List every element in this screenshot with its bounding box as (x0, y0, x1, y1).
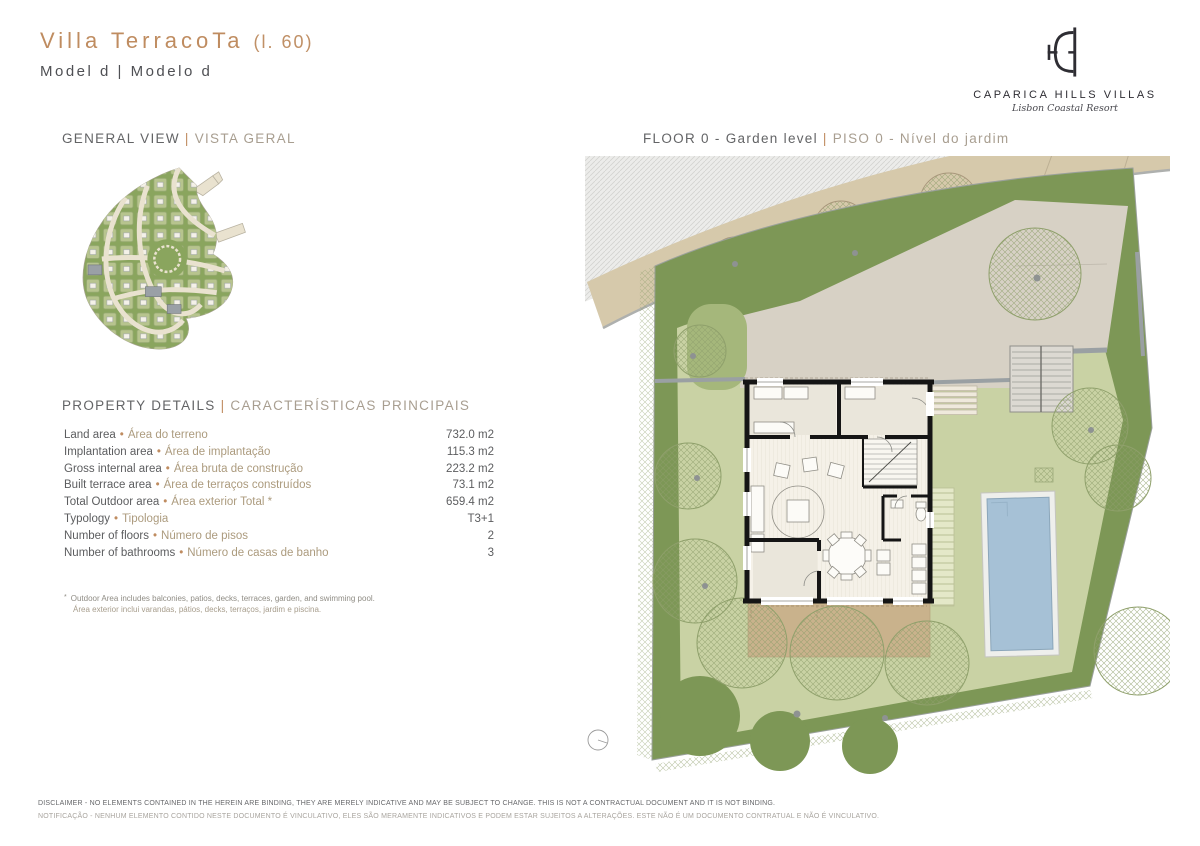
bullet: • (175, 547, 187, 559)
detail-label-pt: Área de terraços construídos (164, 479, 312, 491)
floor-heading-pt: PISO 0 - Nível do jardim (833, 131, 1010, 146)
detail-label-en: Land area (64, 429, 116, 441)
footnote-en: Outdoor Area includes balconies, patios,… (71, 594, 375, 603)
floor-plan (585, 156, 1170, 806)
bullet: • (153, 446, 165, 458)
villa-name: Villa TerracoTa (40, 28, 243, 53)
pergola (932, 488, 954, 606)
title-block: Villa TerracoTa(l. 60) Model d | Modelo … (40, 28, 314, 80)
disclaimer-pt: NOTIFICAÇÃO - NENHUM ELEMENTO CONTIDO NE… (38, 811, 1168, 824)
detail-label-pt: Área bruta de construção (174, 463, 303, 475)
table-row: Gross internal area•Área bruta de constr… (64, 461, 494, 478)
table-row: Total Outdoor area•Área exterior Total *… (64, 494, 494, 511)
general-view-en: GENERAL VIEW (62, 131, 180, 146)
property-details-en: PROPERTY DETAILS (62, 398, 216, 413)
table-row: Implantation area•Área de implantação 11… (64, 444, 494, 461)
table-row: Land area•Área do terreno 732.0 m2 (64, 427, 494, 444)
detail-value: 115.3 m2 (414, 444, 494, 461)
table-row: Number of floors•Número de pisos 2 (64, 528, 494, 545)
detail-label-en: Gross internal area (64, 463, 162, 475)
property-details-pt: CARACTERÍSTICAS PRINCIPAIS (230, 398, 470, 413)
general-view-pt: VISTA GERAL (195, 131, 296, 146)
disclaimer: DISCLAIMER - NO ELEMENTS CONTAINED IN TH… (38, 798, 1168, 823)
details-table: Land area•Área do terreno 732.0 m2 Impla… (64, 427, 494, 561)
brand-name: CAPARICA HILLS VILLAS (958, 89, 1172, 101)
footnote-pt: Área exterior inclui varandas, pátios, d… (64, 605, 321, 614)
footnote: *Outdoor Area includes balconies, patios… (64, 592, 375, 615)
table-row: Number of bathrooms•Número de casas de b… (64, 545, 494, 562)
internal-stairs (863, 439, 917, 485)
floor-heading-en: FLOOR 0 - Garden level (643, 131, 818, 146)
detail-label-pt: Número de pisos (161, 530, 248, 542)
detail-label-pt: Tipologia (122, 513, 168, 525)
brochure-page: Villa TerracoTa(l. 60) Model d | Modelo … (0, 0, 1200, 846)
bullet: • (116, 429, 128, 441)
detail-label-en: Built terrace area (64, 479, 152, 491)
detail-value: 73.1 m2 (414, 477, 494, 494)
detail-value: 3 (414, 545, 494, 562)
bullet: • (162, 463, 174, 475)
detail-value: 2 (414, 528, 494, 545)
detail-label-pt: Área do terreno (128, 429, 208, 441)
detail-value: T3+1 (414, 511, 494, 528)
site-map (68, 160, 306, 358)
bullet: • (152, 479, 164, 491)
brand-logo: CAPARICA HILLS VILLAS Lisbon Coastal Res… (958, 26, 1172, 114)
page-title: Villa TerracoTa(l. 60) (40, 28, 314, 54)
detail-label-en: Number of bathrooms (64, 547, 175, 559)
orientation-symbol-icon (588, 730, 608, 750)
heading-separator: | (216, 398, 231, 413)
detail-value: 223.2 m2 (414, 461, 494, 478)
detail-label-en: Number of floors (64, 530, 149, 542)
model-label: Model d | Modelo d (40, 63, 314, 80)
lot-number: (l. 60) (253, 32, 313, 52)
detail-label-en: Total Outdoor area (64, 496, 159, 508)
pool-shower (1035, 468, 1053, 482)
heading-separator: | (818, 131, 833, 146)
property-details-heading: PROPERTY DETAILS|CARACTERÍSTICAS PRINCIP… (62, 398, 470, 413)
table-row: Typology•Tipologia T3+1 (64, 511, 494, 528)
footnote-marker: * (64, 594, 67, 601)
detail-label-en: Typology (64, 513, 110, 525)
detail-label-pt: Número de casas de banho (187, 547, 328, 559)
general-view-heading: GENERAL VIEW|VISTA GERAL (62, 131, 296, 146)
bullet: • (149, 530, 161, 542)
brand-tagline: Lisbon Coastal Resort (958, 103, 1172, 114)
bullet: • (159, 496, 171, 508)
house (743, 378, 934, 605)
detail-label-pt: Área de implantação (165, 446, 270, 458)
brand-monogram-icon (1043, 26, 1086, 78)
detail-value: 732.0 m2 (414, 427, 494, 444)
detail-label-en: Implantation area (64, 446, 153, 458)
floor-heading: FLOOR 0 - Garden level|PISO 0 - Nível do… (643, 131, 1009, 146)
heading-separator: | (180, 131, 195, 146)
bullet: • (110, 513, 122, 525)
table-row: Built terrace area•Área de terraços cons… (64, 477, 494, 494)
swimming-pool (981, 491, 1059, 657)
disclaimer-en: DISCLAIMER - NO ELEMENTS CONTAINED IN TH… (38, 798, 1168, 811)
detail-value: 659.4 m2 (414, 494, 494, 511)
detail-label-pt: Área exterior Total * (171, 496, 272, 508)
